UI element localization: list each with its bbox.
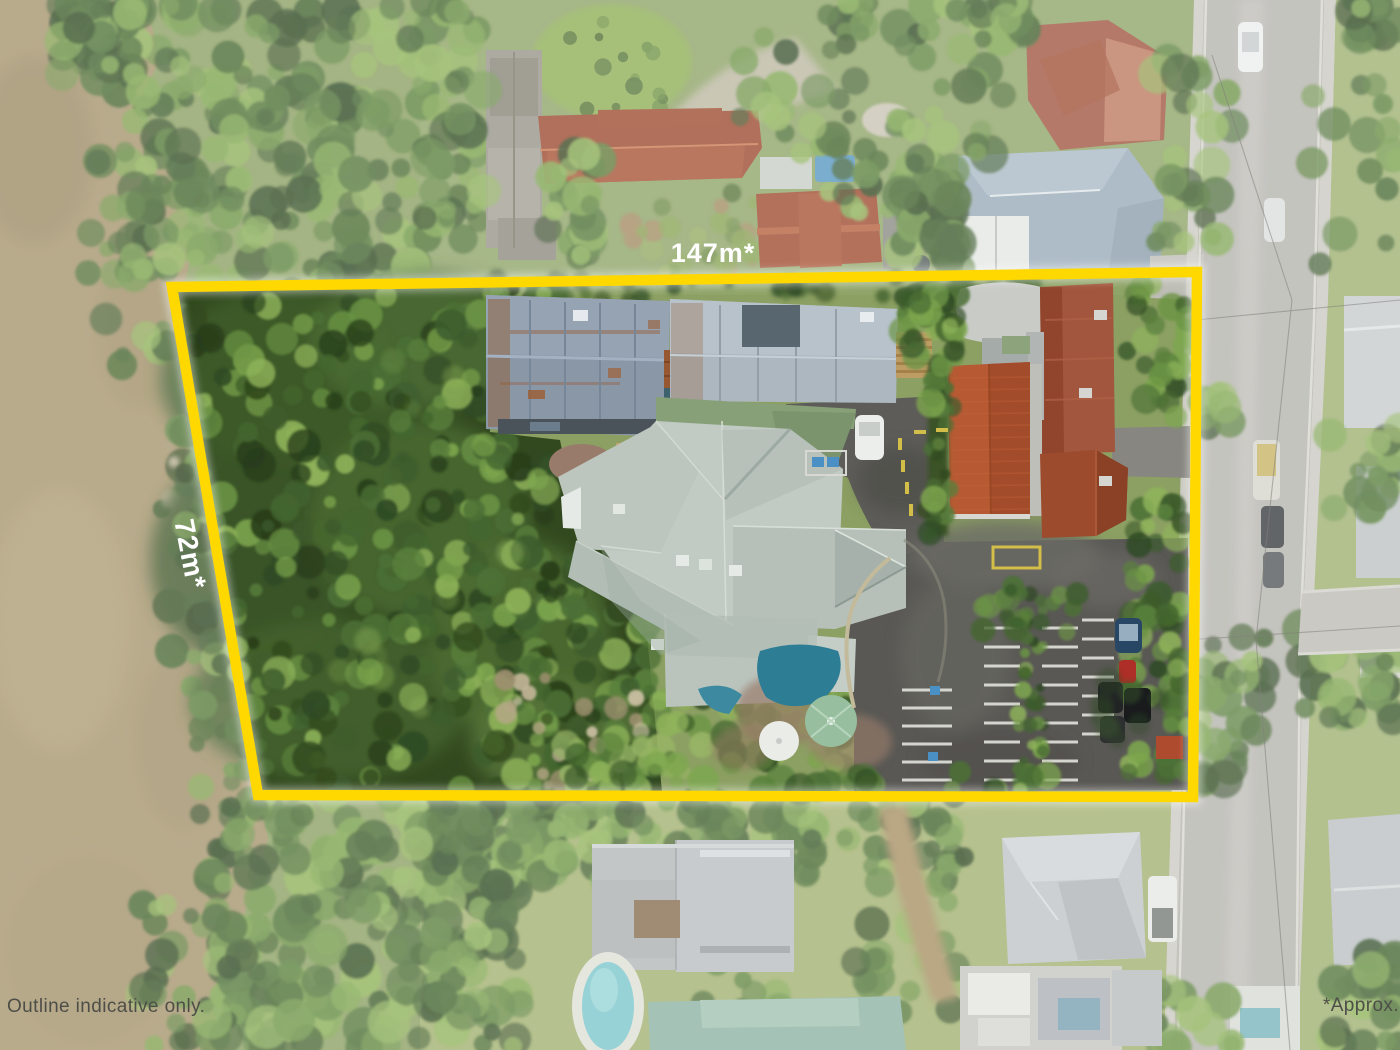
svg-text:*Approx.: *Approx.: [1323, 995, 1399, 1016]
svg-text:147m*: 147m*: [671, 238, 756, 268]
svg-text:Outline indicative only.: Outline indicative only.: [7, 996, 205, 1017]
